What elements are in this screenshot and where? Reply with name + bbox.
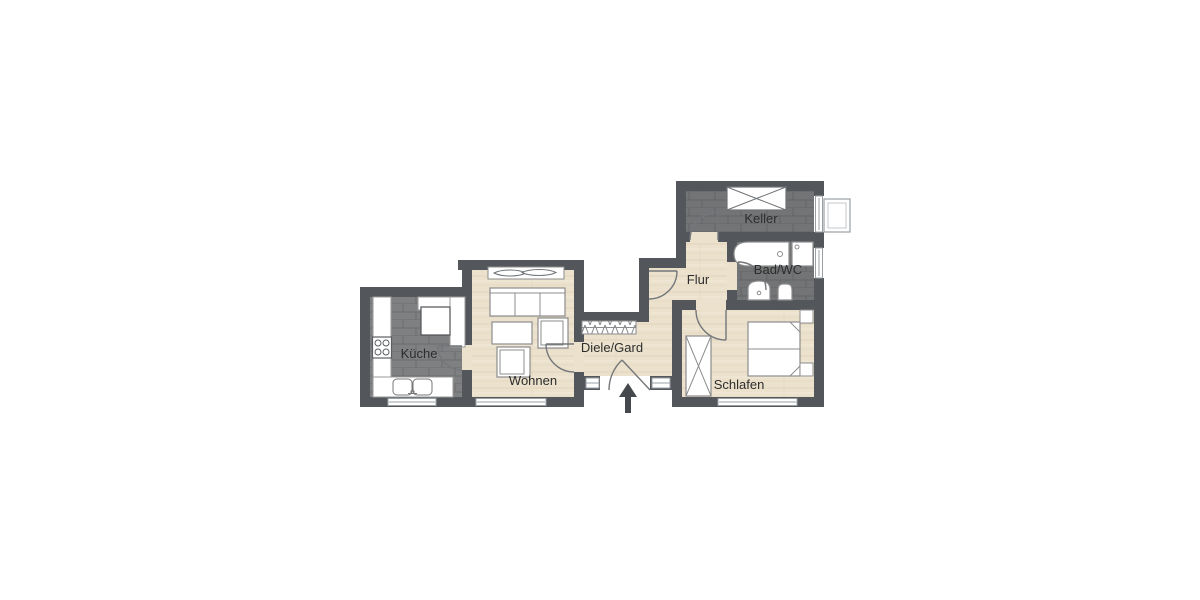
toilet-icon	[778, 284, 792, 300]
room-label-wohnen: Wohnen	[509, 373, 557, 388]
wall-segment	[727, 290, 737, 300]
wall-segment	[462, 370, 472, 397]
wall-segment	[676, 181, 686, 268]
wall-segment	[814, 181, 824, 196]
washbasin-icon	[748, 281, 770, 300]
kitchen-tall-cabinet	[450, 297, 465, 347]
sofa	[490, 288, 565, 316]
floorplan-canvas: Küche Wohnen Diele/Gard Flur Bad/WC Kell…	[0, 0, 1200, 600]
window	[718, 399, 797, 406]
light-well	[824, 199, 850, 232]
room-label-bad: Bad/WC	[754, 262, 802, 277]
room-label-keller: Keller	[744, 211, 778, 226]
threshold-bedroom	[696, 300, 726, 310]
window	[816, 196, 823, 232]
window	[476, 399, 546, 406]
window	[816, 248, 823, 278]
window	[586, 378, 599, 388]
wall-segment	[360, 287, 472, 297]
floor-plan-svg: Küche Wohnen Diele/Gard Flur Bad/WC Kell…	[0, 0, 1200, 600]
room-label-kueche: Küche	[401, 346, 438, 361]
wall-segment	[574, 372, 584, 407]
stove-icon	[373, 337, 392, 358]
threshold-kitchen	[462, 345, 472, 370]
room-label-diele: Diele/Gard	[581, 340, 643, 355]
wall-segment	[726, 300, 824, 310]
window	[388, 399, 436, 406]
window	[652, 378, 670, 388]
hallway-passage-floor	[649, 300, 672, 376]
wall-segment	[814, 310, 824, 407]
basement-storage	[727, 187, 786, 210]
nightstand	[800, 363, 813, 376]
wall-segment	[672, 300, 682, 407]
wall-segment	[360, 287, 370, 407]
wall-segment	[814, 232, 824, 248]
room-label-flur: Flur	[687, 272, 710, 287]
kitchen-fridge	[421, 307, 450, 335]
threshold-basement	[690, 232, 718, 242]
bedroom-wardrobe	[686, 336, 711, 396]
coffee-table	[492, 322, 532, 344]
nightstand	[800, 310, 813, 323]
room-label-schlafen: Schlafen	[714, 377, 765, 392]
wall-segment	[676, 232, 690, 242]
wardrobe-rail-icon	[582, 321, 636, 334]
threshold-bathroom	[727, 262, 737, 290]
radiator-icon	[488, 267, 564, 279]
wall-segment	[718, 232, 824, 242]
